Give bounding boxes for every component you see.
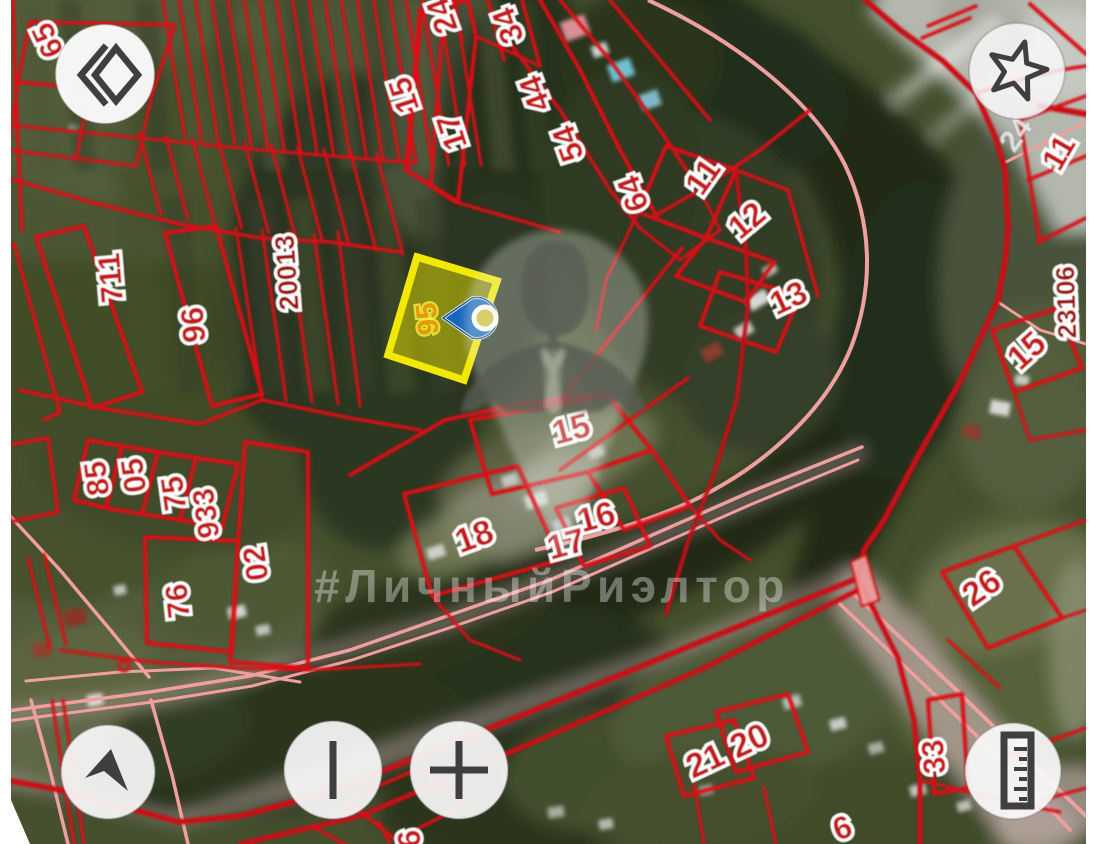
svg-text:23106: 23106 <box>1050 266 1083 339</box>
svg-text:33: 33 <box>915 738 953 775</box>
svg-text:85: 85 <box>77 459 116 498</box>
svg-text:711: 711 <box>91 251 130 304</box>
svg-text:96: 96 <box>174 306 213 345</box>
svg-text:76: 76 <box>158 582 196 620</box>
svg-text:95: 95 <box>410 301 445 336</box>
svg-text:02: 02 <box>236 544 275 583</box>
svg-text:05: 05 <box>114 456 153 495</box>
svg-text:20013: 20013 <box>269 234 304 311</box>
svg-text:933: 933 <box>187 486 227 540</box>
svg-text:#ЛичныйРиэлтор: #ЛичныйРиэлтор <box>314 560 790 612</box>
